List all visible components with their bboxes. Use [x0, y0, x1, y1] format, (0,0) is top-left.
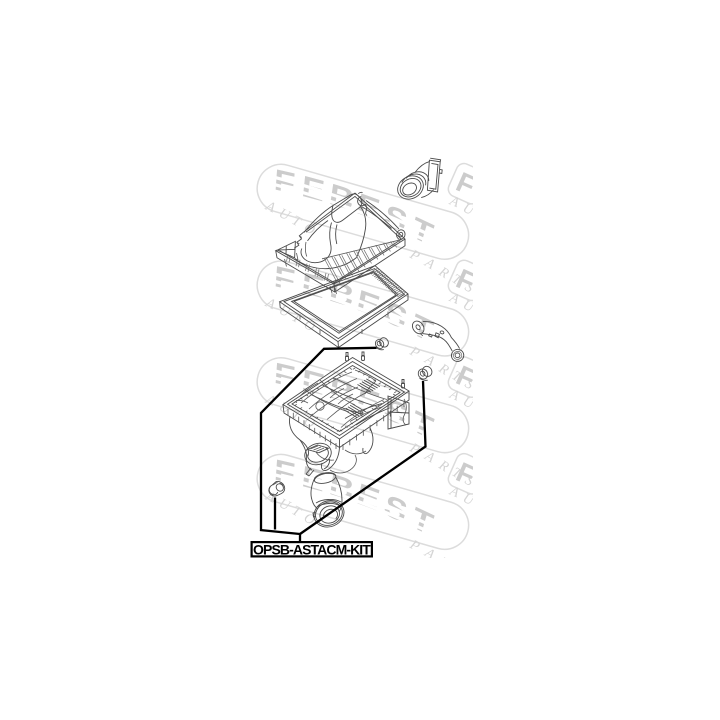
svg-text:R: R [435, 458, 451, 476]
svg-text:A: A [447, 193, 462, 211]
svg-text:A: A [421, 255, 437, 273]
svg-text:U: U [460, 491, 476, 509]
svg-text:U: U [460, 201, 476, 219]
svg-text:A: A [447, 290, 462, 308]
svg-text:A: A [447, 484, 462, 502]
svg-text:U: U [460, 394, 476, 412]
svg-text:A: A [262, 199, 277, 217]
svg-text:R: R [435, 361, 451, 379]
svg-text:OPSB-ASTACM-KIT: OPSB-ASTACM-KIT [253, 541, 371, 557]
svg-text:A: A [447, 387, 462, 405]
svg-text:T: T [449, 562, 465, 579]
svg-text:A: A [262, 295, 277, 313]
svg-text:A: A [421, 448, 437, 466]
svg-text:S: S [462, 570, 476, 586]
svg-text:A: A [421, 545, 437, 563]
svg-text:R: R [435, 554, 451, 572]
svg-text:A: A [262, 392, 277, 410]
svg-text:R: R [435, 264, 451, 282]
svg-text:U: U [460, 298, 476, 316]
